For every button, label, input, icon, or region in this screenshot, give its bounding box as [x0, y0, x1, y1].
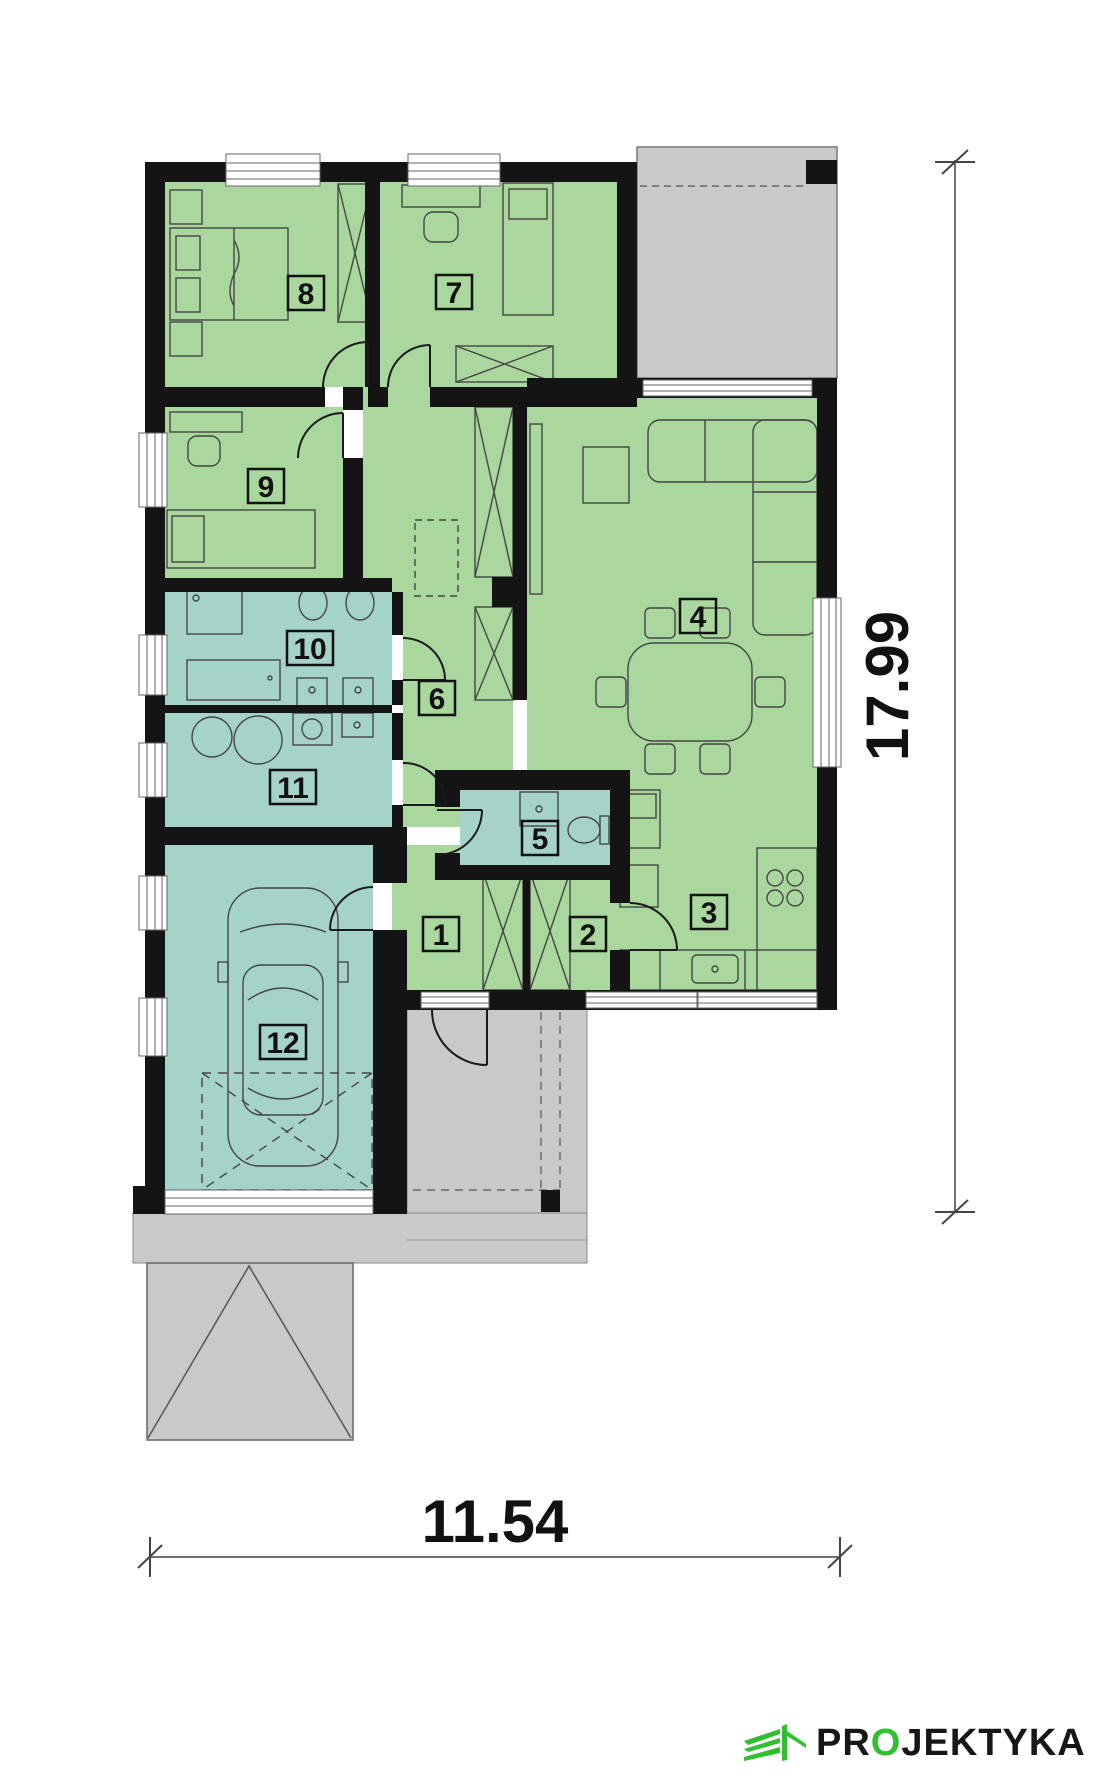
- window-icon: [139, 998, 167, 1056]
- dimension-vertical: 17.99: [854, 150, 975, 1224]
- interior-wall: [392, 592, 403, 635]
- interior-wall: [513, 607, 527, 700]
- hall-floor: [363, 387, 513, 592]
- room-label-10: 10: [287, 631, 333, 666]
- window-icon: [139, 433, 167, 507]
- interior-wall: [523, 876, 530, 990]
- interior-wall: [145, 705, 392, 713]
- window-icon: [813, 598, 841, 767]
- window-icon: [586, 992, 697, 1008]
- height-dimension-label: 17.99: [854, 611, 921, 761]
- room-number: 11: [277, 772, 309, 805]
- interior-wall: [392, 680, 403, 705]
- interior-wall: [343, 387, 363, 410]
- chimney-block: [492, 577, 527, 607]
- room-number: 7: [446, 277, 463, 310]
- garage-apron-area: [133, 1213, 587, 1263]
- room-number: 1: [433, 919, 450, 952]
- room-number: 5: [532, 823, 549, 856]
- interior-wall: [368, 387, 388, 407]
- dimension-horizontal: 11.54: [138, 1488, 852, 1577]
- window-icon: [408, 154, 500, 186]
- window-icon: [139, 635, 167, 695]
- window-icon: [139, 876, 167, 930]
- room-label-12: 12: [260, 1025, 306, 1060]
- interior-wall: [617, 162, 637, 407]
- brand-text: JEKTYKA: [901, 1722, 1085, 1764]
- brand-text: PR: [816, 1722, 871, 1764]
- exterior-wall: [373, 1186, 407, 1214]
- interior-wall: [610, 770, 630, 903]
- room-number: 8: [298, 278, 315, 311]
- window-icon: [698, 992, 817, 1008]
- room-number: 9: [258, 471, 275, 504]
- room-7-floor: [380, 182, 617, 387]
- interior-wall: [343, 458, 363, 578]
- brand-logo: PROJEKTYKA: [742, 1720, 1086, 1766]
- projektyka-logo-icon: [742, 1720, 808, 1766]
- interior-wall: [392, 713, 403, 760]
- room-number: 10: [293, 633, 326, 666]
- garage-door-icon: [165, 1190, 373, 1214]
- porch-pillar: [541, 1190, 560, 1212]
- terrace-pillar: [806, 160, 837, 184]
- floor-plan-page: 1 2 3 4 5 6 7 8: [0, 0, 1116, 1780]
- room-10-floor: [165, 592, 392, 705]
- brand-wordmark: PROJEKTYKA: [816, 1722, 1086, 1765]
- floor-plan-drawing: 1 2 3 4 5 6 7 8: [0, 0, 1116, 1780]
- interior-wall: [435, 865, 630, 880]
- interior-wall: [392, 805, 403, 827]
- exterior-wall: [145, 827, 407, 845]
- room-number: 12: [266, 1027, 299, 1060]
- room-12-floor: [165, 845, 373, 1192]
- exterior-wall: [373, 930, 407, 1188]
- terrace-slider-icon: [643, 380, 812, 396]
- exterior-wall: [145, 162, 637, 182]
- interior-wall: [513, 398, 527, 577]
- exterior-wall: [133, 1186, 165, 1214]
- interior-wall: [145, 578, 392, 592]
- room-number: 4: [690, 601, 707, 634]
- width-dimension-label: 11.54: [422, 1488, 569, 1555]
- brand-text-accent: O: [871, 1722, 902, 1764]
- room-number: 3: [701, 897, 718, 930]
- driveway-area: [147, 1263, 353, 1440]
- window-icon: [421, 992, 489, 1008]
- window-icon: [226, 154, 320, 186]
- exterior-wall: [373, 845, 407, 883]
- room-number: 6: [429, 683, 446, 716]
- room-number: 2: [580, 919, 597, 952]
- interior-wall: [165, 387, 325, 407]
- interior-wall: [435, 770, 630, 790]
- window-icon: [139, 743, 167, 797]
- interior-wall: [610, 950, 630, 990]
